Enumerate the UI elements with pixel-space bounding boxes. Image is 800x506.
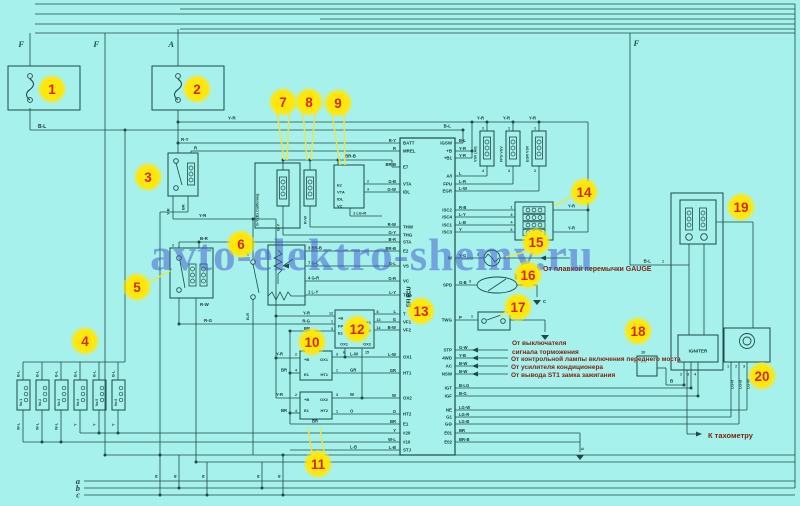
injector-label: No.2 bbox=[38, 399, 42, 406]
wire-label: G-W bbox=[387, 187, 396, 192]
bus-letter: F bbox=[17, 39, 24, 49]
wire-label: IDL bbox=[337, 197, 344, 202]
junction-dot bbox=[177, 142, 180, 145]
wire-label: B-W bbox=[388, 325, 396, 330]
wire-label: 4 bbox=[295, 369, 297, 373]
wire-label: 8 bbox=[377, 310, 379, 314]
callout-number: 2 bbox=[193, 82, 201, 97]
injector-label: No.3 bbox=[57, 399, 61, 406]
wire-label: 4 bbox=[694, 373, 696, 377]
ecu-pin-STP: STP bbox=[443, 348, 452, 353]
ecu-pin-HT2: HT2 bbox=[403, 412, 412, 417]
wire-label: B-L bbox=[444, 124, 452, 129]
wire-label: W-L bbox=[36, 422, 40, 430]
wire-label: B-L bbox=[38, 124, 46, 130]
ecu-pin-AC: AC bbox=[446, 364, 453, 369]
wire-label: R-B bbox=[459, 205, 466, 210]
annotation-text: К тахометру bbox=[708, 431, 754, 440]
wire-label: 1 bbox=[511, 206, 513, 210]
junction-dot bbox=[512, 121, 515, 124]
junction-dot bbox=[206, 494, 209, 497]
wire-label: B-L bbox=[112, 370, 116, 377]
wire-label: 1 bbox=[508, 127, 510, 131]
wire-label: FP bbox=[338, 324, 343, 329]
wire-label: R-W bbox=[303, 216, 308, 224]
wire-label: 6 bbox=[343, 351, 345, 355]
wire-label: Y-R bbox=[477, 116, 484, 121]
wire-label: 1 bbox=[331, 320, 333, 324]
ecu-pin-T: T bbox=[403, 312, 406, 317]
ecu-pin-E02: E02 bbox=[444, 440, 452, 445]
ecu-pin-G⊖: G⊖ bbox=[445, 422, 452, 427]
callout-number: 11 bbox=[311, 457, 326, 472]
callout-number: 10 bbox=[304, 335, 319, 350]
annotation-text: От вывода ST1 замка зажигания bbox=[511, 372, 616, 379]
wire-label: +B bbox=[338, 316, 343, 321]
wire-label: B-L bbox=[644, 259, 652, 264]
wire-label: E1 bbox=[304, 372, 310, 377]
callout-number: 1 bbox=[48, 82, 56, 97]
ecu-pin-HT1: HT1 bbox=[403, 371, 412, 376]
wire-label: +B bbox=[304, 357, 309, 362]
ecu-pin-EGR: EGR bbox=[442, 189, 452, 194]
wire-label: VSV (A/I) bbox=[474, 146, 478, 162]
ecu-pin-SPD: SPD bbox=[443, 283, 452, 288]
wire-label: G-Y (Ex.California) bbox=[256, 193, 260, 226]
wire-label: L bbox=[393, 309, 396, 314]
wire-label: 3 bbox=[336, 393, 338, 397]
wire-label: W-L bbox=[17, 422, 21, 430]
callout-number: 17 bbox=[510, 300, 525, 315]
callout-number: 3 bbox=[144, 170, 152, 185]
ecu-pin-OX1: OX1 bbox=[403, 355, 412, 360]
wire-label: 3 bbox=[743, 365, 745, 369]
wire-label: W-L bbox=[388, 437, 396, 442]
wire-label: Y-R bbox=[276, 352, 283, 357]
wire-label: BR bbox=[281, 408, 287, 413]
ecu-pin-ISC2: ISC2 bbox=[442, 208, 452, 213]
wire-label: VTA bbox=[337, 190, 345, 195]
ecu-pin-STJ: STJ bbox=[403, 448, 412, 453]
wire-label: 1 LG-R bbox=[353, 211, 366, 216]
callout-number: 19 bbox=[733, 200, 748, 215]
wire-label: LG-B bbox=[459, 419, 469, 424]
ecu-pin-ISC4: ISC4 bbox=[442, 215, 452, 220]
junction-dot bbox=[289, 372, 292, 375]
ecu-pin-ISC1: ISC1 bbox=[442, 223, 452, 228]
wire-label: B-W bbox=[459, 369, 467, 374]
ecu-pin-FPU: FPU bbox=[443, 182, 452, 187]
wire-label: 2 bbox=[680, 373, 682, 377]
junction-dot bbox=[159, 494, 162, 497]
wire-label: 4 bbox=[511, 221, 513, 225]
ecu-pin-BATT: BATT bbox=[403, 141, 415, 146]
junction-dot bbox=[124, 129, 127, 132]
wire-label: 2 bbox=[295, 393, 297, 397]
wire-label: L-R bbox=[459, 179, 466, 184]
wire-label: R-G bbox=[204, 318, 213, 323]
wire-label: 2 bbox=[735, 365, 737, 369]
ecu-pin-4WD: 4WD bbox=[442, 356, 452, 361]
wire-label: 1 bbox=[336, 369, 338, 373]
junction-dot bbox=[60, 441, 63, 444]
wire-label: Y-R bbox=[459, 153, 466, 158]
annotation-text: сигнала торможения bbox=[512, 349, 579, 356]
ecu-pin-VTA: VTA bbox=[403, 182, 412, 187]
callout-number: 8 bbox=[305, 95, 313, 110]
ecu-pin-IGF: IGF bbox=[445, 394, 453, 399]
wire-label: L-B bbox=[350, 445, 357, 450]
junction-dot bbox=[98, 432, 101, 435]
wire-label: 2 bbox=[295, 353, 297, 357]
ecu-pin-IGSW: IGSW bbox=[440, 141, 453, 146]
wiring-diagram: No.1No.2No.3No.4No.5No.6EFI ECUBATTR-YMR… bbox=[0, 0, 800, 506]
wire-label: Y-R bbox=[503, 116, 510, 121]
wire-label: EGR VSV bbox=[526, 145, 530, 162]
wire-label: E1 bbox=[338, 331, 344, 336]
wire-label: R-Y bbox=[389, 138, 396, 143]
wire-label: L-W bbox=[388, 352, 396, 357]
junction-dot bbox=[538, 121, 541, 124]
wire-label: R bbox=[393, 146, 396, 151]
junction-dot bbox=[117, 432, 120, 435]
wire-label: W bbox=[392, 393, 396, 398]
wire-label: B-G bbox=[459, 391, 467, 396]
wire-label: HT1 bbox=[320, 372, 328, 377]
wire-label: B-L bbox=[93, 370, 97, 377]
wire-label: 2 bbox=[367, 180, 369, 184]
wire-label: 2 bbox=[482, 127, 484, 131]
wire-label: VC bbox=[337, 204, 343, 209]
wire-label: Y-R bbox=[459, 146, 466, 151]
wire-label: 1 bbox=[534, 127, 536, 131]
wire-label: LG-R bbox=[459, 412, 469, 417]
callout-number: 4 bbox=[81, 334, 89, 349]
junction-dot bbox=[289, 330, 292, 333]
wire-label: B-L bbox=[459, 138, 466, 143]
wire-label: B-L bbox=[17, 370, 21, 377]
junction-dot bbox=[361, 397, 364, 400]
wire-label: 2 bbox=[534, 169, 536, 173]
callout-number: 12 bbox=[349, 322, 364, 337]
junction-dot bbox=[462, 129, 465, 132]
wire-label: BR-B bbox=[345, 154, 356, 159]
junction-dot bbox=[282, 454, 285, 457]
callout-number: 9 bbox=[334, 96, 342, 111]
wire-label: L-Y bbox=[389, 290, 396, 295]
wire-label: L-B bbox=[389, 445, 396, 450]
ecu-pin-NE: NE bbox=[446, 408, 452, 413]
wire-label: 4 bbox=[295, 409, 297, 413]
bus-letter: F bbox=[92, 39, 99, 49]
wire-label: Y-R bbox=[276, 392, 283, 397]
junction-dot bbox=[195, 461, 198, 464]
wire-label: R-Y bbox=[181, 137, 189, 142]
injector-label: No.6 bbox=[114, 399, 118, 406]
wire-label: OX2 bbox=[320, 397, 329, 402]
ecu-pin-+B: +B bbox=[446, 149, 452, 154]
ecu-pin-IGT: IGT bbox=[445, 386, 453, 391]
callout-number: 7 bbox=[279, 95, 287, 110]
ecu-pin-VF2: VF2 bbox=[403, 328, 412, 333]
wire-label: L-B bbox=[459, 220, 466, 225]
wire-label: BR bbox=[312, 419, 318, 424]
junction-dot bbox=[261, 487, 264, 490]
wire-label: 12 bbox=[329, 312, 333, 316]
callout-number: 16 bbox=[520, 268, 536, 283]
wire-label: 3 bbox=[687, 373, 689, 377]
wire-label: Y-R bbox=[166, 208, 171, 215]
ecu-pin-VF1: VF1 bbox=[403, 320, 412, 325]
ecu-pin-MREL: MREL bbox=[403, 149, 416, 154]
callout-number: 13 bbox=[413, 304, 429, 319]
wire-label: B-W bbox=[459, 361, 467, 366]
ecu-pin-OX2: OX2 bbox=[403, 396, 412, 401]
wire-label: Y-R bbox=[303, 311, 310, 316]
wire-label: 1 bbox=[336, 410, 338, 414]
wire-label: 10 bbox=[641, 351, 645, 355]
junction-dot bbox=[252, 218, 255, 221]
annotation-text: От контрольной лампы включения переднего… bbox=[511, 355, 681, 363]
wire-label: 1 bbox=[471, 315, 473, 319]
junction-dot bbox=[178, 487, 181, 490]
wire-label: G-B bbox=[459, 280, 467, 285]
bus-letter: F bbox=[633, 38, 640, 48]
ecu-pin-E01: E01 bbox=[444, 431, 452, 436]
injector-label: No.5 bbox=[95, 399, 99, 406]
ecu-pin-#10: #10 bbox=[403, 440, 411, 445]
wire-label: B-L bbox=[36, 370, 40, 377]
junction-dot bbox=[289, 412, 292, 415]
wire-label: R-W bbox=[388, 222, 396, 227]
wire-label: GR bbox=[390, 368, 396, 373]
wire-label: B-L bbox=[74, 370, 78, 377]
wire-label: LG-B bbox=[739, 380, 743, 389]
wire-label: L-Y bbox=[459, 212, 466, 217]
callout-number: 5 bbox=[133, 280, 141, 295]
callout-number: 14 bbox=[576, 185, 592, 200]
wire-label: HT2 bbox=[320, 408, 328, 413]
wire-label: L bbox=[459, 171, 462, 176]
wire-label: BR-B bbox=[386, 162, 396, 167]
wire-label: LG-R bbox=[731, 380, 735, 389]
wire-label: P bbox=[459, 315, 462, 320]
wire-label: Y-R bbox=[529, 116, 536, 121]
ecu-pin-NSW: NSW bbox=[442, 372, 453, 377]
wire-label: G bbox=[393, 317, 396, 322]
junction-dot bbox=[104, 454, 107, 457]
wire-label: BR bbox=[181, 204, 186, 210]
callout-number: 18 bbox=[630, 324, 646, 339]
wire-label: IGNITER bbox=[689, 349, 708, 354]
junction-dot bbox=[275, 315, 278, 318]
wire-label: +B bbox=[304, 397, 309, 402]
junction-dot bbox=[471, 121, 474, 124]
junction-dot bbox=[683, 384, 686, 387]
wire-label: L-W bbox=[459, 186, 467, 191]
wire-label: 1 bbox=[662, 260, 664, 264]
wire-label: B bbox=[670, 379, 673, 384]
ecu-pin-THW: THW bbox=[403, 225, 414, 230]
junction-dot bbox=[41, 441, 44, 444]
wire-label: 4 bbox=[482, 169, 484, 173]
wire-label: LG-W bbox=[459, 405, 470, 410]
wire-label: E1 bbox=[304, 408, 310, 413]
wire-label: 3 bbox=[511, 213, 513, 217]
ecu-pin-IDL: IDL bbox=[403, 190, 410, 195]
wire-label: E2 bbox=[337, 183, 343, 188]
wire-label: Y-R bbox=[228, 116, 236, 121]
ecu-pin-TWG: TWG bbox=[442, 318, 453, 323]
junction-dot bbox=[159, 454, 162, 457]
ecu-pin-A/I: A/I bbox=[446, 174, 452, 179]
ecu-pin-+B1: +B1 bbox=[444, 156, 453, 161]
wire-label: 13 bbox=[377, 318, 381, 322]
junction-dot bbox=[690, 387, 693, 390]
wire-label: FPU VSV bbox=[500, 146, 504, 162]
junction-dot bbox=[587, 209, 590, 212]
callout-pointer bbox=[344, 113, 345, 165]
wire-label: Y-R bbox=[568, 204, 575, 209]
wire-label: OX1 bbox=[320, 357, 329, 362]
wire-label: B-R bbox=[245, 313, 250, 320]
wire-label: G-W bbox=[459, 345, 468, 350]
wire-label: 3 bbox=[331, 327, 333, 331]
wire-label: W-L bbox=[55, 422, 59, 430]
wire-label: 14 bbox=[377, 326, 381, 330]
junction-dot bbox=[486, 121, 489, 124]
wire-label: Y bbox=[393, 428, 396, 433]
wire-label: 1 bbox=[727, 365, 729, 369]
callout-number: 6 bbox=[237, 237, 245, 252]
schematic-page: No.1No.2No.3No.4No.5No.6EFI ECUBATTR-YMR… bbox=[0, 0, 800, 506]
wire-label: BR bbox=[390, 419, 396, 424]
wire-label: W bbox=[350, 392, 354, 397]
junction-dot bbox=[697, 395, 700, 398]
wire-label: 1 L-Y bbox=[308, 290, 318, 295]
wire-label: BR bbox=[281, 368, 287, 373]
junction-dot bbox=[178, 323, 181, 326]
wire-label: OX1 bbox=[340, 342, 349, 347]
wire-label: OX2 bbox=[363, 342, 372, 347]
wire-label: G-B bbox=[388, 179, 396, 184]
wire-label: L-W bbox=[350, 352, 358, 357]
injector-label: No.4 bbox=[76, 399, 80, 406]
wire-label: 15 bbox=[365, 351, 369, 355]
wire-label: BR-B bbox=[459, 437, 469, 442]
wire-label: GR bbox=[350, 368, 356, 373]
ecu-pin-E1: E1 bbox=[403, 422, 409, 427]
junction-dot bbox=[344, 356, 347, 359]
injector-label: No.1 bbox=[19, 399, 23, 406]
wire-label: 3 bbox=[367, 188, 369, 192]
wire-label: 3 bbox=[336, 353, 338, 357]
ecu-pin-#20: #20 bbox=[403, 431, 411, 436]
ecu-pin-E7: E7 bbox=[403, 165, 409, 170]
wire-label: 3 bbox=[508, 169, 510, 173]
callout-number: 20 bbox=[754, 369, 769, 384]
bus-letter: A bbox=[167, 39, 174, 49]
wire-label: B-L bbox=[55, 370, 59, 377]
wire-label: B-LG bbox=[459, 383, 469, 388]
callout-number: 15 bbox=[528, 235, 544, 250]
wire-label: R-W bbox=[200, 302, 210, 307]
wire-label: Y-B bbox=[459, 353, 466, 358]
junction-dot bbox=[282, 494, 285, 497]
annotation-text: От выключателя bbox=[512, 340, 567, 347]
ecu-pin-G1: G1 bbox=[446, 415, 452, 420]
bus-letter: c bbox=[76, 490, 80, 500]
junction-dot bbox=[177, 121, 180, 124]
wire-label: 3 bbox=[469, 280, 471, 284]
wire-label: Y-R bbox=[199, 213, 207, 218]
wire-label: BR bbox=[459, 428, 465, 433]
annotation-text: От усилителя кондиционера bbox=[511, 364, 603, 371]
junction-dot bbox=[275, 357, 278, 360]
wire-label: R-G bbox=[302, 319, 310, 324]
